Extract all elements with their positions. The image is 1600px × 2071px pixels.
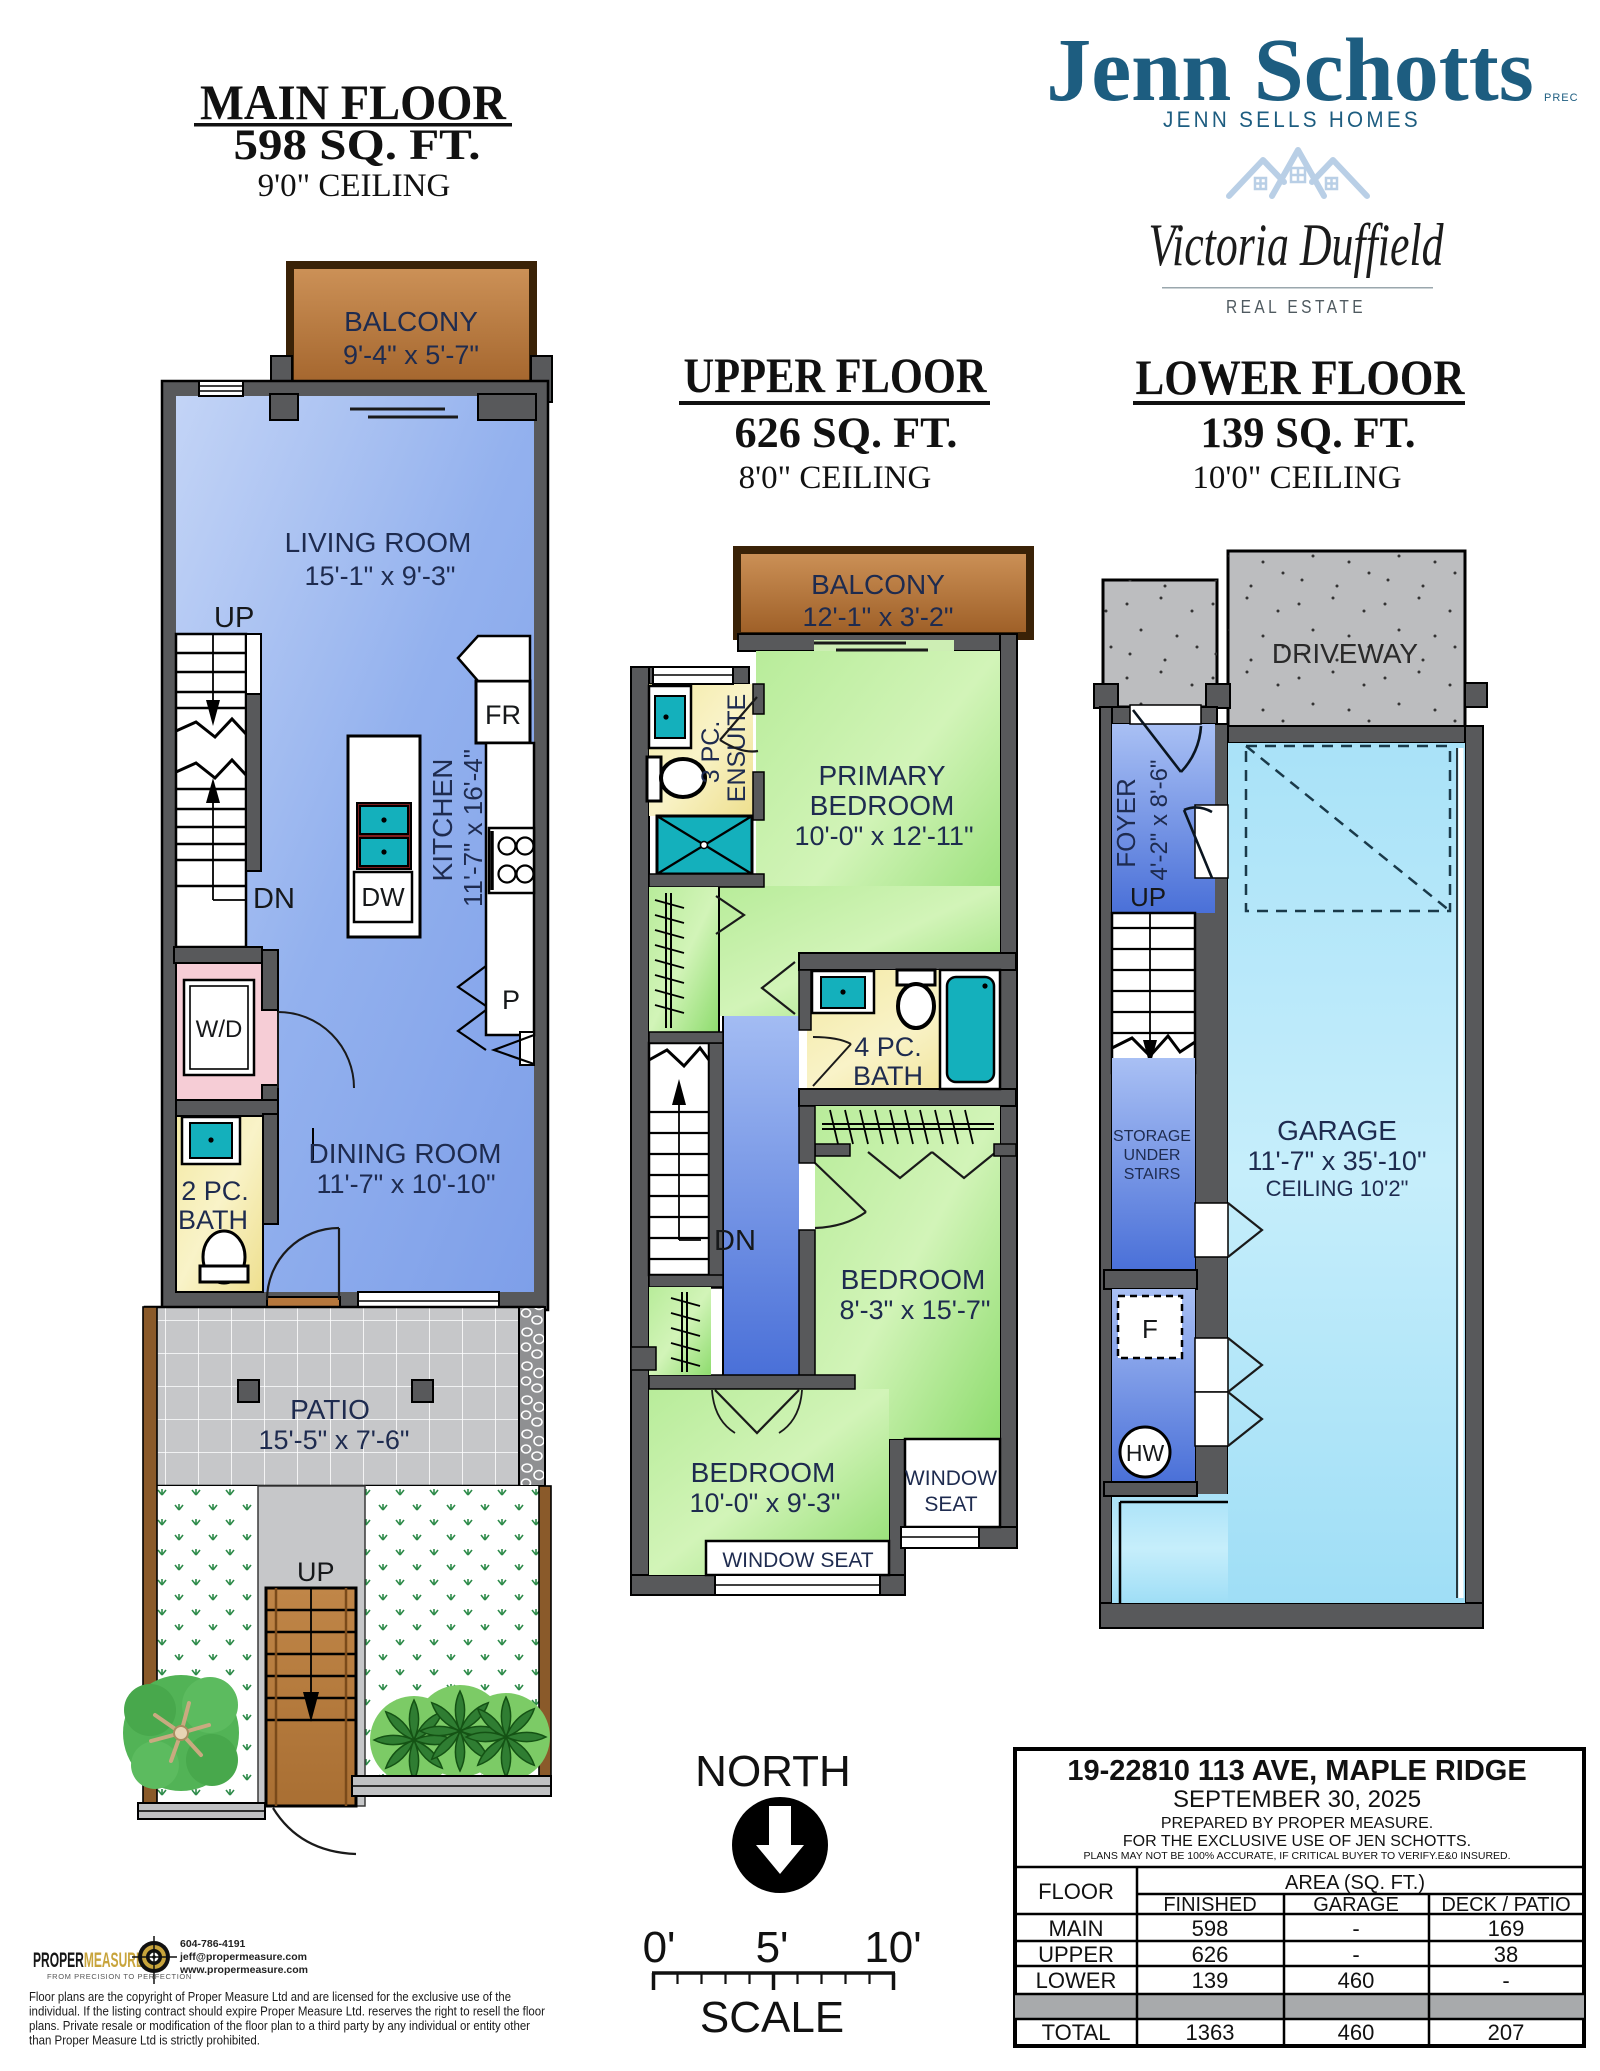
svg-text:UP: UP	[297, 1557, 335, 1587]
svg-text:GARAGE: GARAGE	[1313, 1894, 1399, 1916]
svg-text:STORAGE: STORAGE	[1113, 1128, 1191, 1145]
svg-text:SCALE: SCALE	[700, 1993, 844, 2042]
svg-text:LOWER FLOOR: LOWER FLOOR	[1136, 349, 1466, 405]
svg-text:PROPERMEASURE: PROPERMEASURE	[33, 1949, 144, 1972]
svg-text:www.propermeasure.com: www.propermeasure.com	[179, 1964, 308, 1976]
svg-text:P: P	[502, 985, 520, 1015]
svg-text:jeff@propermeasure.com: jeff@propermeasure.com	[179, 1951, 307, 1963]
svg-text:12'-1" x 3'-2": 12'-1" x 3'-2"	[802, 602, 953, 632]
svg-text:19-22810 113 AVE, MAPLE RIDGE: 19-22810 113 AVE, MAPLE RIDGE	[1067, 1755, 1526, 1787]
svg-text:460: 460	[1338, 2020, 1375, 2045]
svg-text:10'-0" x 12'-11": 10'-0" x 12'-11"	[794, 821, 973, 851]
svg-text:NORTH: NORTH	[695, 1747, 851, 1796]
svg-text:BATH: BATH	[178, 1205, 248, 1235]
svg-text:8'-3" x 15'-7": 8'-3" x 15'-7"	[839, 1295, 990, 1325]
svg-text:GARAGE: GARAGE	[1277, 1115, 1397, 1146]
svg-text:FROM PRECISION TO PERFECTION: FROM PRECISION TO PERFECTION	[47, 1972, 192, 1981]
svg-text:UPPER FLOOR: UPPER FLOOR	[684, 347, 988, 403]
svg-text:11'-7" x 35'-10": 11'-7" x 35'-10"	[1247, 1146, 1426, 1176]
svg-text:Floor plans are the copyright: Floor plans are the copyright of Proper …	[29, 1989, 511, 2004]
svg-text:598 SQ. FT.: 598 SQ. FT.	[234, 122, 481, 169]
svg-text:FR: FR	[485, 700, 521, 730]
svg-text:10'0" CEILING: 10'0" CEILING	[1192, 460, 1401, 496]
svg-text:KITCHEN: KITCHEN	[427, 759, 458, 882]
svg-text:F: F	[1142, 1314, 1158, 1344]
svg-text:BALCONY: BALCONY	[344, 306, 478, 337]
svg-text:DINING ROOM: DINING ROOM	[309, 1138, 502, 1169]
svg-text:3 PC.: 3 PC.	[697, 721, 725, 784]
svg-text:FLOOR: FLOOR	[1038, 1879, 1114, 1904]
svg-text:LOWER: LOWER	[1036, 1968, 1117, 1993]
svg-text:than Proper Measure Ltd is str: than Proper Measure Ltd is strictly proh…	[29, 2033, 260, 2048]
svg-text:BALCONY: BALCONY	[811, 569, 945, 600]
svg-text:-: -	[1352, 1942, 1359, 1967]
svg-text:AREA (SQ. FT.): AREA (SQ. FT.)	[1285, 1872, 1425, 1894]
svg-text:DN: DN	[253, 883, 295, 915]
svg-text:TOTAL: TOTAL	[1042, 2020, 1111, 2045]
svg-text:FOYER: FOYER	[1111, 778, 1141, 868]
svg-text:4'-2" x 8'-6": 4'-2" x 8'-6"	[1146, 760, 1173, 881]
svg-text:PLANS MAY NOT BE 100% ACCURATE: PLANS MAY NOT BE 100% ACCURATE, IF CRITI…	[1083, 1850, 1510, 1862]
svg-text:4 PC.: 4 PC.	[854, 1032, 922, 1062]
svg-text:DW: DW	[361, 882, 405, 912]
svg-text:BEDROOM: BEDROOM	[841, 1264, 986, 1295]
svg-text:15'-1" x 9'-3": 15'-1" x 9'-3"	[304, 561, 455, 591]
svg-text:9'0" CEILING: 9'0" CEILING	[258, 168, 451, 204]
svg-text:PREPARED BY PROPER MEASURE.: PREPARED BY PROPER MEASURE.	[1161, 1815, 1433, 1832]
svg-text:BEDROOM: BEDROOM	[691, 1457, 836, 1488]
svg-text:10': 10'	[864, 1923, 921, 1972]
svg-text:0': 0'	[643, 1923, 676, 1972]
svg-text:Jenn Schotts: Jenn Schotts	[1046, 21, 1534, 120]
svg-text:38: 38	[1494, 1942, 1518, 1967]
svg-text:PATIO: PATIO	[290, 1394, 370, 1425]
svg-text:HW: HW	[1126, 1440, 1165, 1466]
svg-text:DECK / PATIO: DECK / PATIO	[1441, 1894, 1570, 1916]
svg-text:460: 460	[1338, 1968, 1375, 1993]
svg-text:626 SQ. FT.: 626 SQ. FT.	[735, 410, 958, 457]
svg-text:169: 169	[1488, 1916, 1525, 1941]
svg-text:604-786-4191: 604-786-4191	[180, 1938, 246, 1950]
svg-text:UNDER: UNDER	[1124, 1147, 1181, 1164]
svg-text:11'-7" x 16'-4": 11'-7" x 16'-4"	[458, 749, 488, 907]
svg-text:9'-4" x 5'-7": 9'-4" x 5'-7"	[343, 340, 479, 370]
svg-text:626: 626	[1192, 1942, 1229, 1967]
svg-text:139 SQ. FT.: 139 SQ. FT.	[1201, 410, 1416, 457]
svg-text:BATH: BATH	[853, 1061, 923, 1091]
svg-text:UP: UP	[214, 602, 254, 634]
svg-text:207: 207	[1488, 2020, 1525, 2045]
svg-text:1363: 1363	[1186, 2020, 1235, 2045]
svg-text:DN: DN	[714, 1225, 756, 1257]
svg-text:11'-7" x 10'-10": 11'-7" x 10'-10"	[316, 1169, 495, 1199]
svg-text:individual. If the listing co: individual. If the listing contract shou…	[29, 2004, 546, 2019]
svg-text:JENN SELLS HOMES: JENN SELLS HOMES	[1163, 107, 1421, 132]
svg-text:15'-5" x 7'-6": 15'-5" x 7'-6"	[258, 1425, 409, 1455]
svg-text:LIVING ROOM: LIVING ROOM	[285, 527, 472, 558]
svg-text:139: 139	[1192, 1968, 1229, 1993]
svg-text:MAIN: MAIN	[1049, 1916, 1104, 1941]
svg-text:REAL ESTATE: REAL ESTATE	[1226, 297, 1366, 317]
svg-text:-: -	[1352, 1916, 1359, 1941]
svg-text:UPPER: UPPER	[1038, 1942, 1114, 1967]
svg-text:-: -	[1502, 1968, 1509, 1993]
svg-text:PREC: PREC	[1544, 92, 1579, 104]
svg-text:8'0" CEILING: 8'0" CEILING	[739, 460, 932, 496]
svg-text:WINDOW: WINDOW	[905, 1467, 997, 1490]
svg-text:STAIRS: STAIRS	[1124, 1166, 1181, 1183]
svg-text:2 PC.: 2 PC.	[181, 1176, 249, 1206]
svg-text:BEDROOM: BEDROOM	[810, 790, 955, 821]
svg-text:PRIMARY: PRIMARY	[818, 760, 945, 791]
svg-text:FOR THE EXCLUSIVE USE OF JEN S: FOR THE EXCLUSIVE USE OF JEN SCHOTTS.	[1123, 1833, 1471, 1850]
svg-text:SEPTEMBER 30, 2025: SEPTEMBER 30, 2025	[1173, 1786, 1421, 1813]
svg-text:10'-0" x 9'-3": 10'-0" x 9'-3"	[689, 1488, 840, 1518]
svg-text:UP: UP	[1130, 882, 1166, 912]
svg-text:DRIVEWAY: DRIVEWAY	[1272, 638, 1419, 669]
svg-text:Victoria Duffield: Victoria Duffield	[1149, 212, 1445, 278]
svg-text:598: 598	[1192, 1916, 1229, 1941]
svg-text:plans. Private resale or modi: plans. Private resale or modification of…	[29, 2018, 531, 2033]
svg-text:5': 5'	[756, 1923, 789, 1972]
svg-text:FINISHED: FINISHED	[1163, 1894, 1256, 1916]
svg-text:SEAT: SEAT	[924, 1493, 977, 1516]
svg-text:W/D: W/D	[196, 1016, 243, 1043]
svg-text:CEILING 10'2": CEILING 10'2"	[1266, 1176, 1409, 1201]
svg-text:WINDOW SEAT: WINDOW SEAT	[722, 1549, 873, 1572]
